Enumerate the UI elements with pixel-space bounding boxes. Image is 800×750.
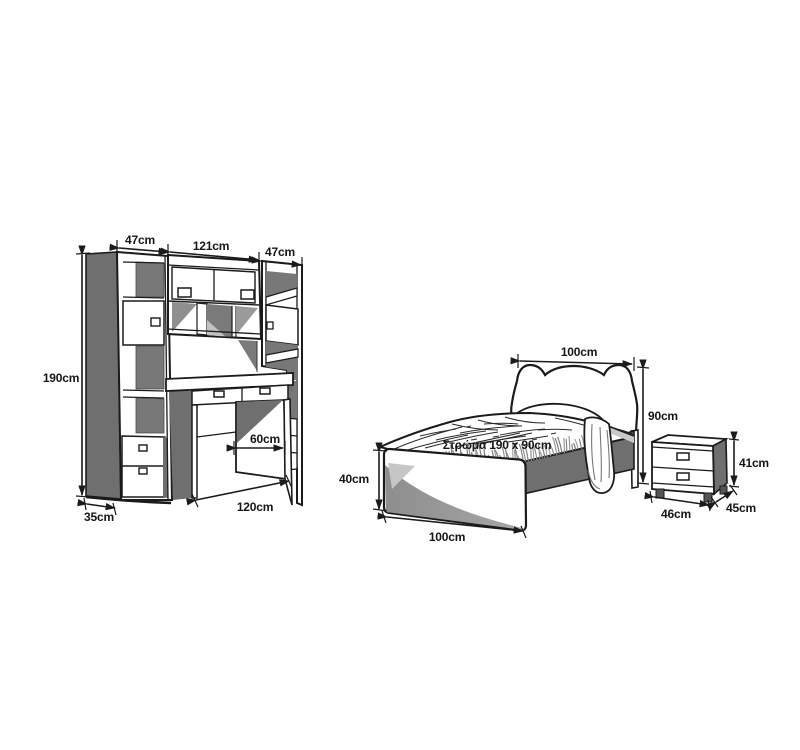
svg-text:100cm: 100cm — [429, 530, 465, 544]
svg-text:60cm: 60cm — [250, 432, 280, 446]
svg-text:47cm: 47cm — [125, 233, 155, 247]
svg-text:40cm: 40cm — [339, 472, 369, 486]
svg-text:121cm: 121cm — [193, 239, 229, 253]
svg-text:41cm: 41cm — [739, 456, 769, 470]
svg-text:47cm: 47cm — [265, 245, 295, 259]
svg-text:35cm: 35cm — [84, 510, 114, 524]
svg-text:45cm: 45cm — [726, 501, 756, 515]
svg-text:Στρώμα 190 x 90cm: Στρώμα 190 x 90cm — [443, 438, 552, 452]
svg-text:46cm: 46cm — [661, 507, 691, 521]
svg-text:190cm: 190cm — [43, 371, 79, 385]
svg-text:90cm: 90cm — [648, 409, 678, 423]
svg-text:100cm: 100cm — [561, 345, 597, 359]
svg-text:120cm: 120cm — [237, 500, 273, 514]
